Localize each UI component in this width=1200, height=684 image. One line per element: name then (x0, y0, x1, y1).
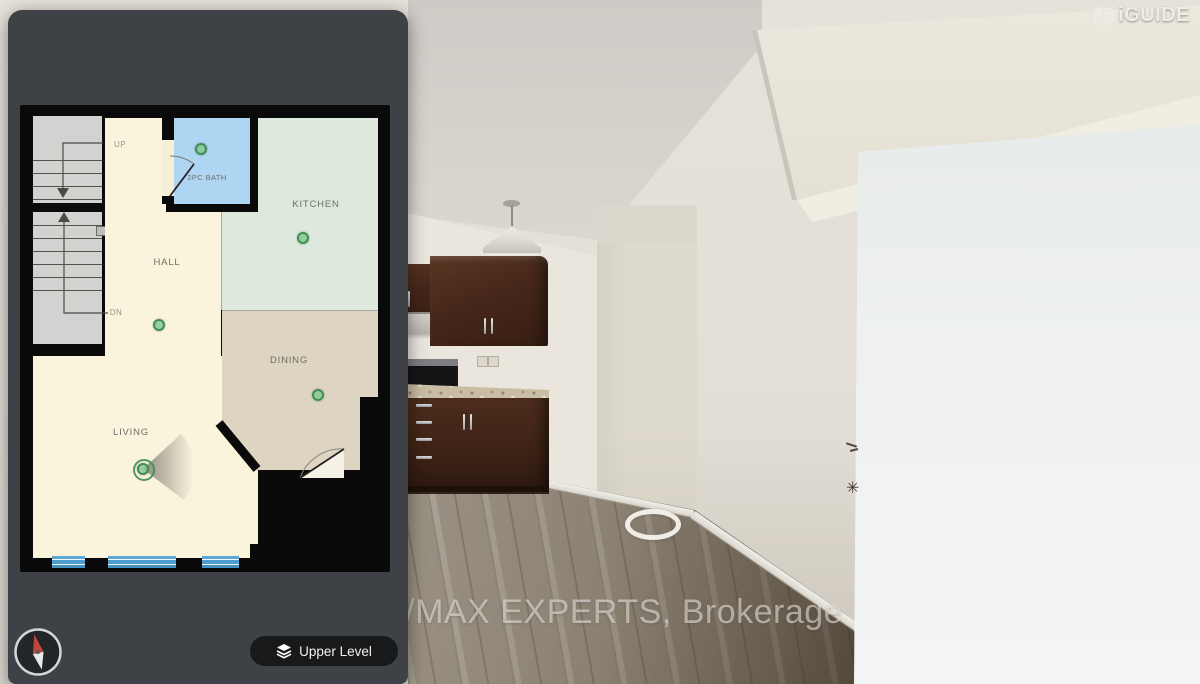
wall-outlet (488, 356, 499, 367)
cabinet-handle-icon (470, 414, 472, 430)
room-label-living: LIVING (91, 427, 171, 438)
right-foreground-wall (850, 120, 1200, 684)
stairs-down-label: DN (104, 308, 128, 317)
upper-cabinet-left (406, 264, 432, 316)
floor-navigation-hotspot[interactable] (625, 509, 681, 540)
room-label-bath: 2PC BATH (170, 173, 244, 182)
wall-outlet (477, 356, 488, 367)
compass-button[interactable] (13, 627, 63, 677)
cabinet-handle-icon (408, 291, 410, 307)
pano-marker-dining[interactable] (312, 389, 324, 401)
iguide-logo: iGUIDE (1093, 4, 1190, 27)
drawer-handle-icon (416, 438, 432, 441)
room-label-dining: DINING (249, 355, 329, 366)
cabinet-kickboard (404, 486, 549, 494)
drawer-handle-icon (416, 421, 432, 424)
upper-cabinet-main (430, 256, 548, 346)
pano-marker-living-active[interactable] (137, 463, 149, 475)
drawer-handle-icon (416, 456, 432, 459)
floorplan-map[interactable]: UP DN 2PC BATH KITCHEN HALL DINING LIVIN… (20, 105, 390, 572)
brokerage-watermark: RE/MAX EXPERTS, Brokerage (340, 593, 860, 632)
lower-cabinets (404, 398, 549, 492)
iguide-logo-text: iGUIDE (1118, 4, 1190, 27)
level-selector-label: Upper Level (299, 644, 372, 659)
iguide-camera-icon (1093, 6, 1114, 25)
pano-marker-bath[interactable] (195, 143, 207, 155)
wall-asterisk-mark: ✳ (846, 481, 859, 497)
room-label-kitchen: KITCHEN (276, 199, 356, 210)
room-label-hall: HALL (127, 257, 207, 268)
drawer-handle-icon (416, 404, 432, 407)
pano-marker-hall[interactable] (153, 319, 165, 331)
cabinet-handle-icon (484, 318, 486, 334)
cabinet-handle-icon (463, 414, 465, 430)
pano-marker-kitchen[interactable] (297, 232, 309, 244)
cabinet-handle-icon (491, 318, 493, 334)
level-selector-button[interactable]: Upper Level (250, 636, 398, 666)
layers-icon (276, 643, 292, 659)
stairs-up-label: UP (108, 140, 132, 149)
floorplan-panel: UP DN 2PC BATH KITCHEN HALL DINING LIVIN… (8, 10, 408, 684)
